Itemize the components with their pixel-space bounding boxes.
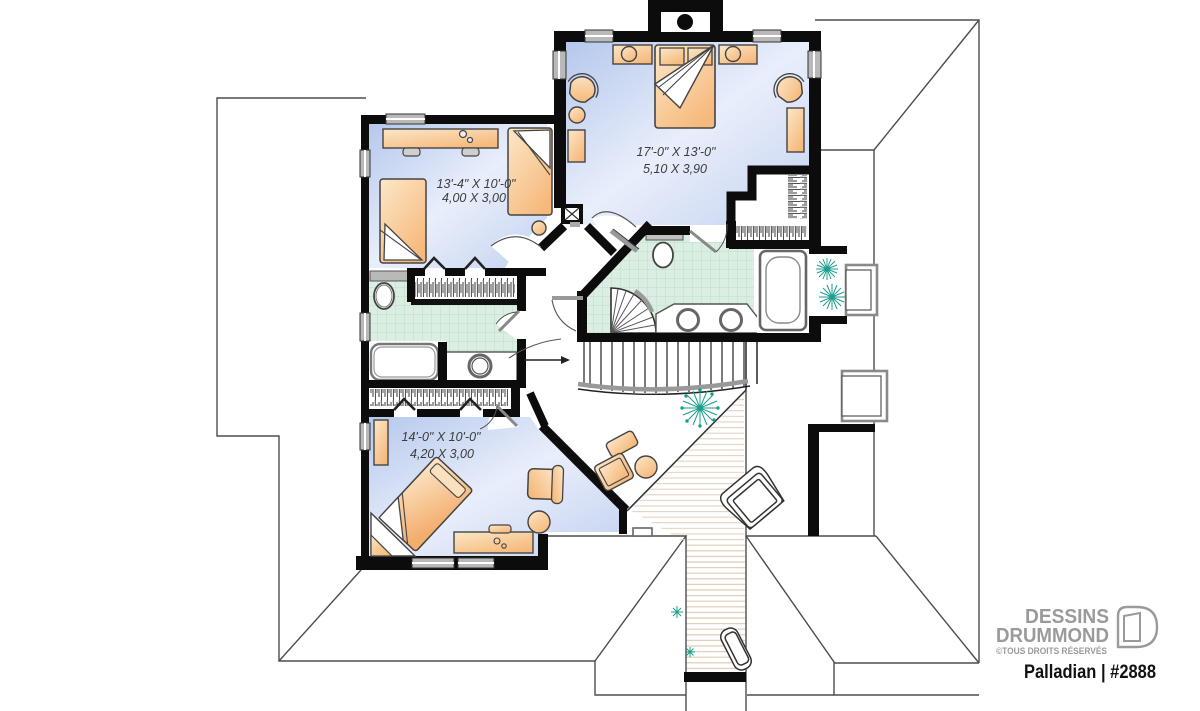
svg-text:4,20 X 3,00: 4,20 X 3,00 [410, 447, 474, 461]
svg-text:5,10 X 3,90: 5,10 X 3,90 [643, 162, 707, 176]
svg-text:©TOUS DROITS RÉSERVÉS: ©TOUS DROITS RÉSERVÉS [996, 646, 1107, 656]
svg-text:13'-4" X 10'-0": 13'-4" X 10'-0" [437, 177, 517, 191]
svg-text:14'-0" X 10'-0": 14'-0" X 10'-0" [402, 430, 482, 444]
svg-text:17'-0" X 13'-0": 17'-0" X 13'-0" [637, 145, 717, 159]
svg-text:Palladian | #2888: Palladian | #2888 [1024, 662, 1156, 683]
svg-text:DRUMMOND: DRUMMOND [996, 625, 1109, 647]
svg-text:4,00 X 3,00: 4,00 X 3,00 [442, 191, 506, 205]
